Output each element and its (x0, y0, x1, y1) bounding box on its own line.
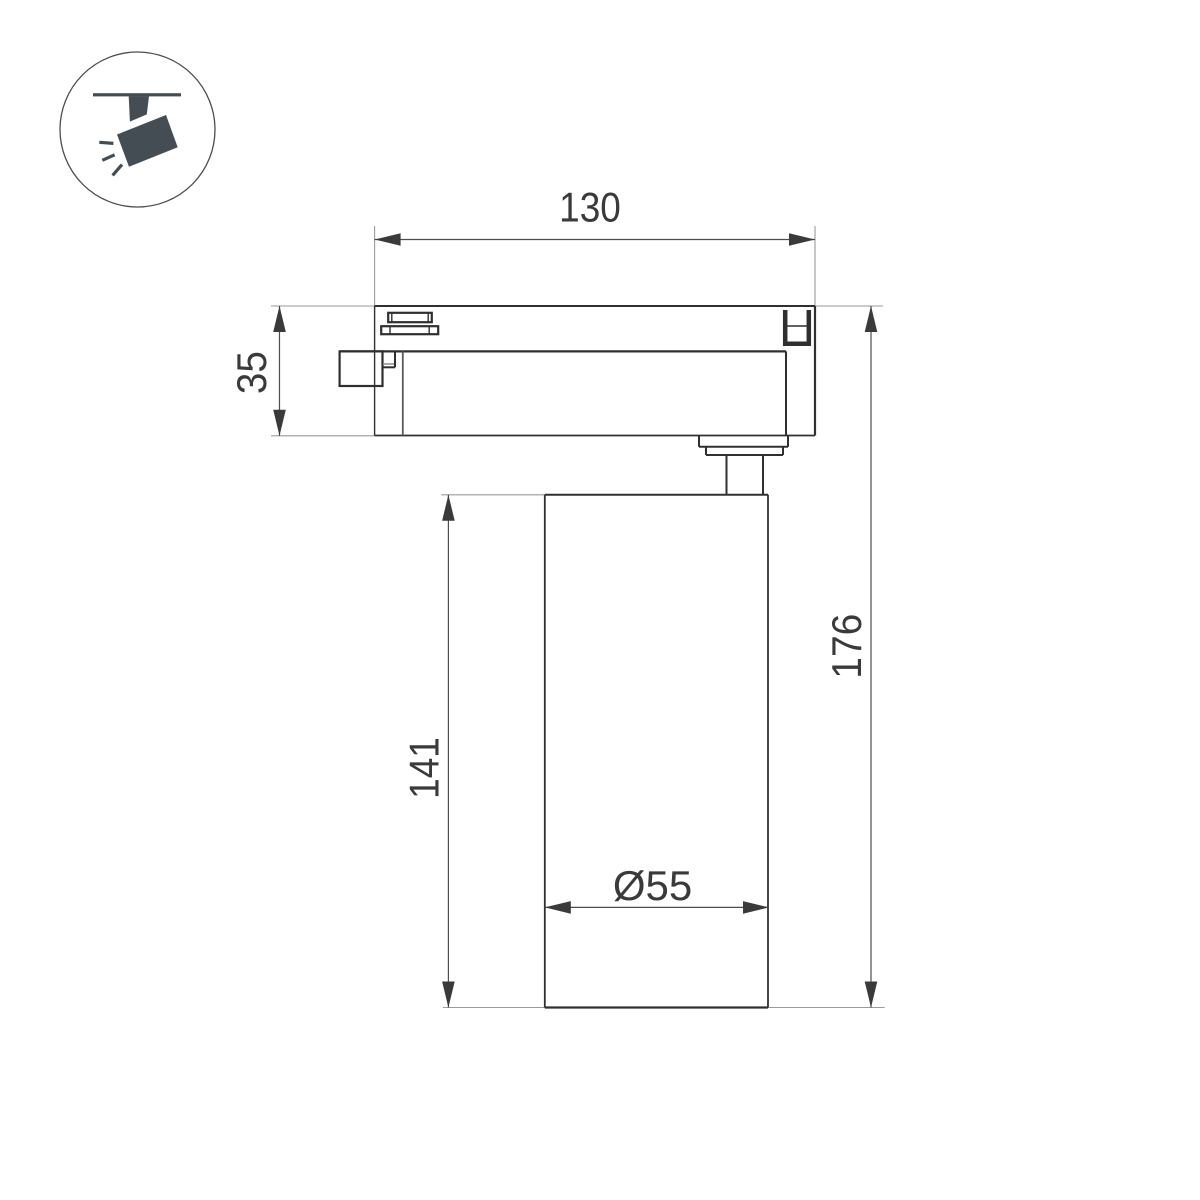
svg-text:141: 141 (402, 737, 449, 799)
svg-text:176: 176 (823, 614, 871, 679)
svg-text:Ø55: Ø55 (613, 862, 692, 909)
svg-text:130: 130 (559, 184, 621, 231)
svg-text:35: 35 (227, 351, 275, 394)
